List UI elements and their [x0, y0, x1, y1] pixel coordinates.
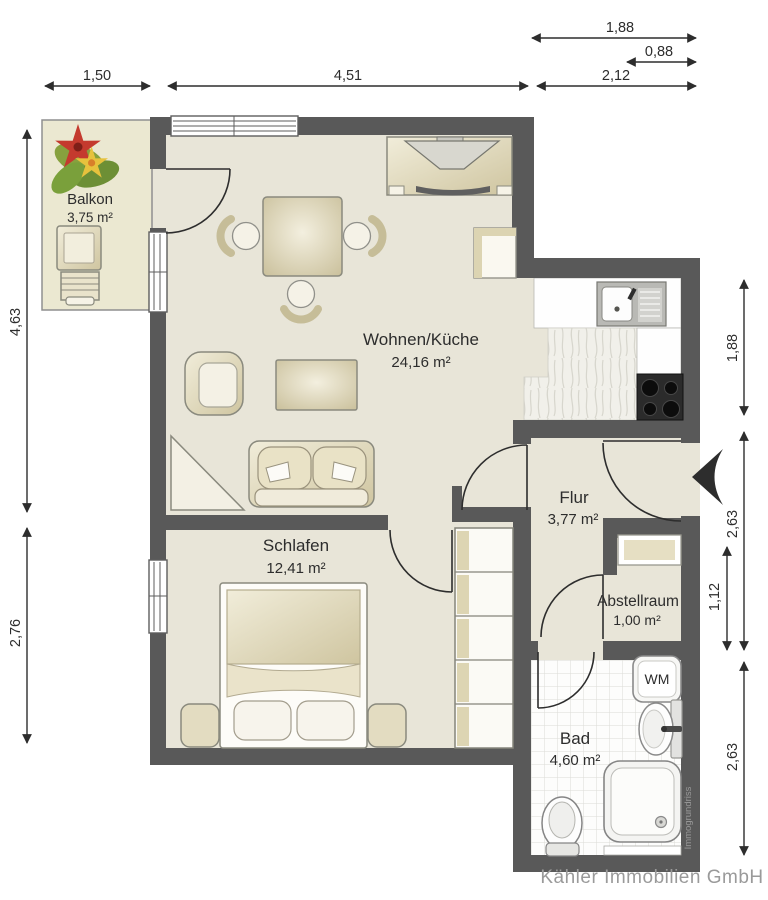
dim-label: 2,12	[602, 68, 630, 84]
balcony-table	[57, 226, 101, 270]
floorplan-page: WM Balkon 3,75 m² Wohnen/Küche 24,16 m² …	[0, 0, 768, 900]
dim-label: 0,88	[645, 44, 673, 60]
dim-top-212: 2,12	[537, 68, 696, 86]
bed	[220, 583, 367, 748]
kitchen-sink	[597, 282, 666, 326]
toilet	[542, 797, 582, 856]
dim-right-188: 1,88	[725, 280, 744, 415]
washing-machine: WM	[633, 656, 681, 702]
coffee-table	[276, 360, 357, 410]
shower	[604, 761, 681, 842]
nightstand-left	[181, 704, 219, 747]
window-bedroom	[149, 560, 167, 633]
dim-label: 1,88	[725, 334, 741, 362]
room-bad-name: Bad	[560, 729, 590, 748]
dim-label: 2,63	[725, 510, 741, 538]
window-balcony-side	[149, 232, 167, 312]
dim-top-088: 0,88	[627, 44, 696, 62]
dim-label: 2,76	[8, 619, 24, 647]
kitchen-worktop	[637, 328, 681, 374]
company-name: Kähler Immobilien GmbH	[540, 867, 763, 888]
dim-top-150: 1,50	[45, 68, 150, 86]
dim-right-263-upper: 2,63	[725, 432, 744, 650]
room-flur-name: Flur	[559, 488, 589, 507]
washing-machine-label: WM	[645, 671, 670, 687]
shower-threshold	[604, 846, 681, 855]
dim-label: 2,63	[725, 743, 741, 771]
wardrobe	[455, 528, 513, 748]
dim-label: 4,63	[8, 308, 24, 336]
room-flur-area: 3,77 m²	[548, 511, 599, 528]
bathroom-sink	[639, 700, 682, 758]
dim-label: 1,50	[83, 68, 111, 84]
balcony-chair	[61, 272, 99, 305]
dim-right-263-lower: 2,63	[725, 662, 744, 855]
watermark-vertical: Immogrundriss	[683, 786, 694, 849]
small-cabinet	[474, 228, 516, 278]
dim-left-463: 4,63	[8, 130, 27, 512]
dim-label: 4,51	[334, 68, 362, 84]
floorplan-svg: WM Balkon 3,75 m² Wohnen/Küche 24,16 m² …	[0, 0, 768, 900]
stove	[637, 374, 683, 420]
room-wohnen-name: Wohnen/Küche	[363, 330, 479, 349]
dim-top-451: 4,51	[168, 68, 528, 86]
room-schlafen-area: 12,41 m²	[266, 560, 325, 577]
room-balkon-name: Balkon	[67, 191, 113, 208]
dim-label: 1,88	[606, 20, 634, 36]
room-wohnen-area: 24,16 m²	[391, 354, 450, 371]
dim-label: 1,12	[707, 583, 723, 611]
pillow	[234, 701, 291, 740]
window-living-top	[171, 116, 298, 136]
room-abstellraum-area: 1,00 m²	[613, 612, 661, 628]
armchair	[185, 352, 243, 415]
dim-right-112: 1,12	[707, 547, 727, 650]
room-balkon-area: 3,75 m²	[67, 210, 113, 225]
room-abstellraum-name: Abstellraum	[597, 593, 679, 610]
dim-top-188: 1,88	[532, 20, 696, 38]
storage-shelf	[618, 535, 681, 565]
room-bad-area: 4,60 m²	[550, 752, 601, 769]
pillow	[297, 701, 354, 740]
tv-sideboard	[387, 137, 512, 196]
sofa	[249, 441, 374, 507]
room-schlafen-name: Schlafen	[263, 536, 329, 555]
dim-left-276: 2,76	[8, 528, 27, 743]
dining-table	[263, 197, 342, 276]
nightstand-right	[368, 704, 406, 747]
